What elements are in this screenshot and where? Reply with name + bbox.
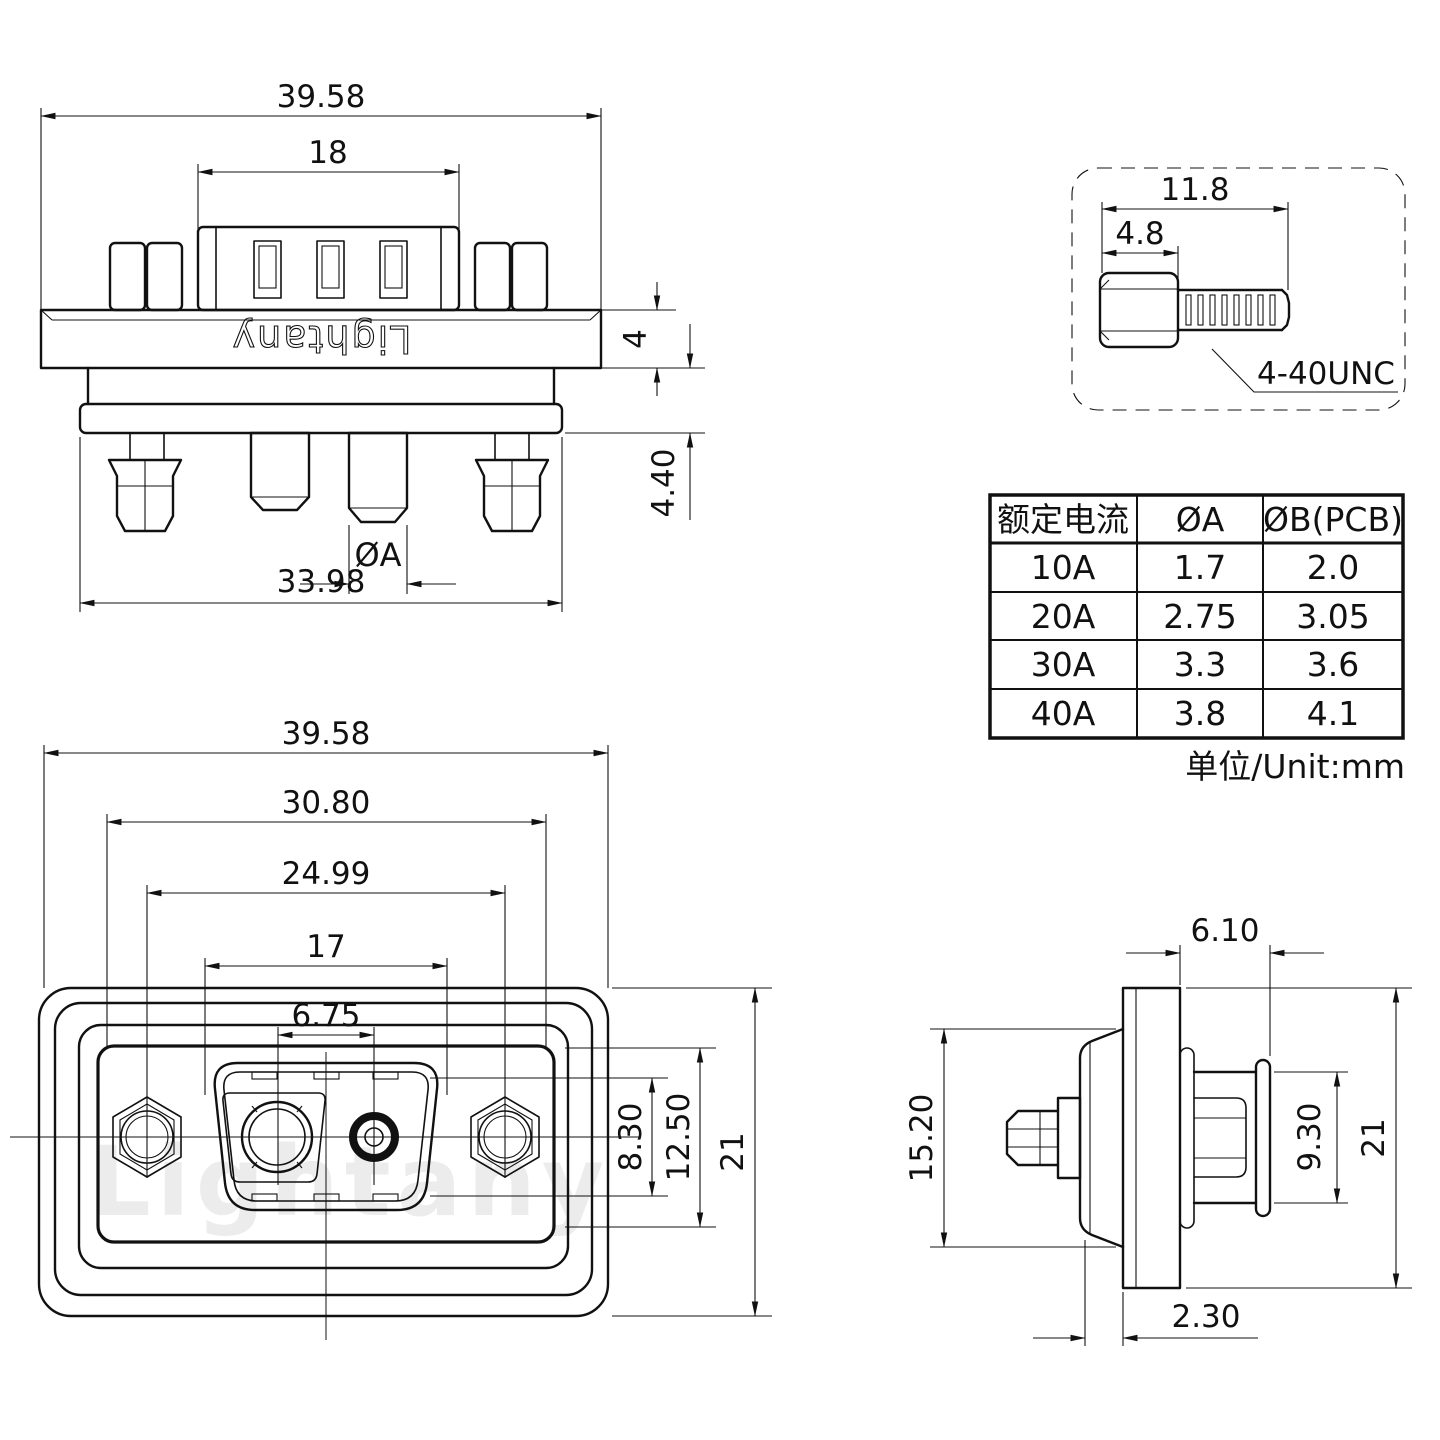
dim-front-insert-height: 12.50 [661, 1093, 697, 1182]
cell-current: 20A [1031, 597, 1096, 636]
cell-current: 30A [1031, 645, 1096, 684]
dim-pin-protrusion: 4.40 [646, 448, 682, 517]
cell-current: 40A [1031, 694, 1096, 733]
dim-front-cutout-width: 30.80 [282, 785, 371, 821]
dim-front-opening-height: 8.30 [613, 1102, 649, 1171]
cell-dia-b: 3.05 [1296, 597, 1369, 636]
table-row: 20A 2.75 3.05 [1031, 597, 1370, 636]
rear-insulator-lip [80, 404, 562, 433]
table-header-dia-a: ØA [1176, 500, 1225, 539]
dim-screw-head-length: 4.8 [1115, 216, 1164, 252]
power-contact-pin [349, 433, 407, 522]
current-rating-table: 额定电流 ØA ØB(PCB) 10A 1.7 2.0 20A 2.75 3.0… [990, 495, 1405, 786]
dim-side-insert-height: 9.30 [1292, 1102, 1328, 1171]
dim-side-front-depth: 6.10 [1190, 913, 1259, 949]
side-flange-plate [1123, 988, 1180, 1288]
contact-windows [254, 241, 407, 298]
dim-flange-thickness: 4 [618, 329, 654, 349]
side-gasket [1180, 1048, 1194, 1228]
table-row: 10A 1.7 2.0 [1031, 548, 1360, 587]
table-row: 40A 3.8 4.1 [1031, 694, 1360, 733]
clinch-nut-right [476, 433, 548, 531]
cell-dia-a: 2.75 [1163, 597, 1236, 636]
clinch-nut-left [109, 433, 181, 531]
side-rear-body [1058, 1029, 1123, 1247]
side-solder-pin [1007, 1111, 1058, 1165]
connector-front-view: Lightany 39.58 30.80 24.99 17 6.75 [10, 716, 772, 1340]
connector-side-view: 6.10 15.20 [904, 913, 1412, 1346]
connector-top-view: 39.58 18 Lightany [41, 79, 705, 612]
dim-side-overall-height: 21 [1356, 1118, 1392, 1157]
screw-hex-head [1100, 273, 1178, 347]
dim-top-shroud-width: 18 [308, 135, 347, 171]
dim-front-opening-width: 17 [306, 929, 345, 965]
table-row: 30A 3.3 3.6 [1031, 645, 1360, 684]
jackscrew-post-right [475, 243, 547, 310]
cell-dia-b: 2.0 [1307, 548, 1359, 587]
dim-screw-length: 11.8 [1160, 172, 1229, 208]
screw-thread [1178, 290, 1289, 330]
cell-current: 10A [1031, 548, 1096, 587]
unit-note: 单位/Unit:mm [1185, 747, 1405, 786]
cell-dia-a: 3.8 [1174, 694, 1226, 733]
cell-dia-b: 3.6 [1307, 645, 1359, 684]
dim-top-overall-width: 39.58 [277, 79, 366, 115]
dim-front-overall-width: 39.58 [282, 716, 371, 752]
signal-contact-pin [251, 433, 309, 510]
jackscrew-detail-view: 11.8 4.8 4-40UNC [1072, 168, 1405, 410]
cell-dia-b: 4.1 [1307, 694, 1359, 733]
table-header-dia-b: ØB(PCB) [1263, 500, 1403, 539]
thread-spec-label: 4-40UNC [1257, 356, 1395, 392]
dim-pin-row-width: 33.98 [277, 564, 366, 600]
dim-front-overall-height: 21 [715, 1132, 751, 1171]
brand-engraving: Lightany [231, 317, 412, 361]
dim-front-mounting-pitch: 24.99 [282, 856, 371, 892]
cell-dia-a: 3.3 [1174, 645, 1226, 684]
table-header-current: 额定电流 [997, 500, 1129, 539]
side-front-shell [1194, 1060, 1270, 1216]
cell-dia-a: 1.7 [1174, 548, 1226, 587]
dim-side-panel-offset: 2.30 [1171, 1299, 1240, 1335]
technical-drawing-page: 39.58 18 Lightany [0, 0, 1440, 1440]
jackscrew-post-left [110, 243, 182, 310]
technical-drawing-canvas: 39.58 18 Lightany [0, 0, 1440, 1440]
dim-side-body-height: 15.20 [904, 1094, 940, 1183]
